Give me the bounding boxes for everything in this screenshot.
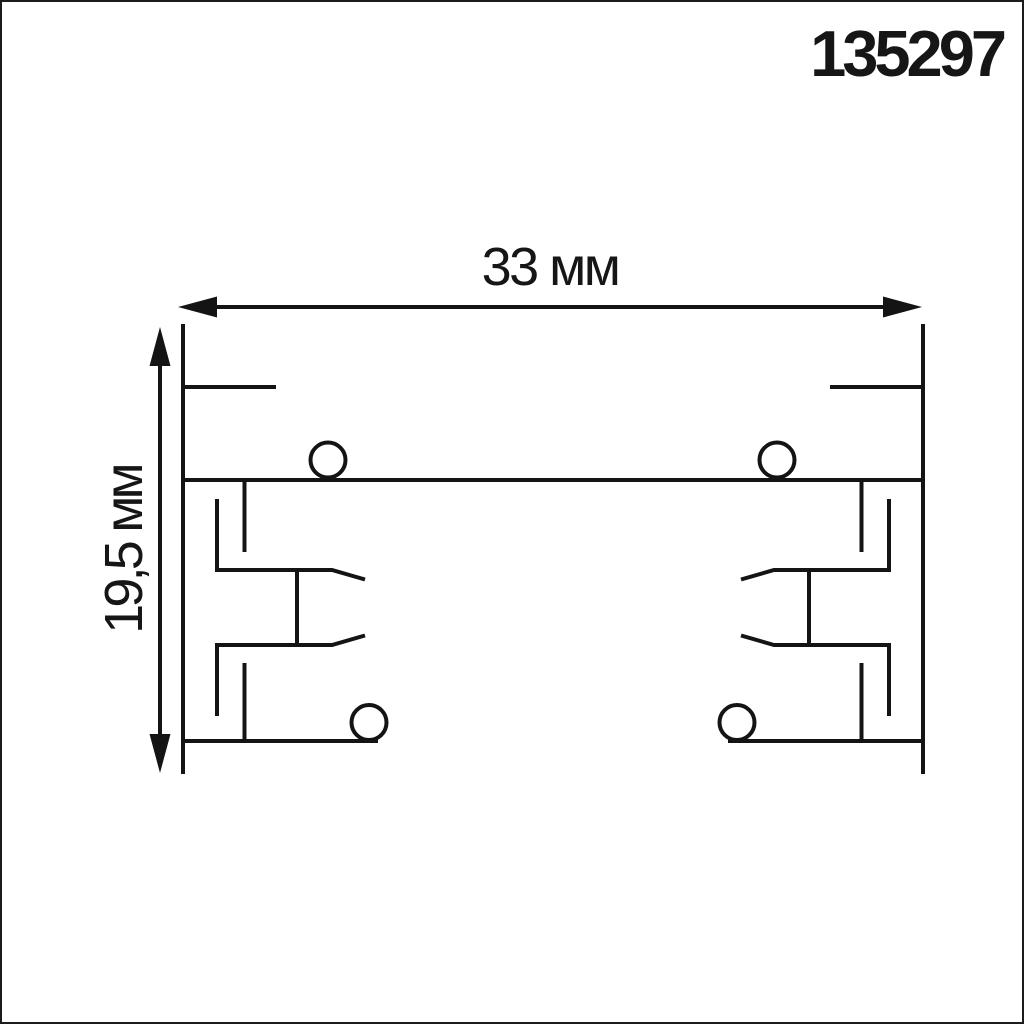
svg-text:19,5 мм: 19,5 мм [94,465,154,633]
svg-text:33 мм: 33 мм [482,237,619,297]
